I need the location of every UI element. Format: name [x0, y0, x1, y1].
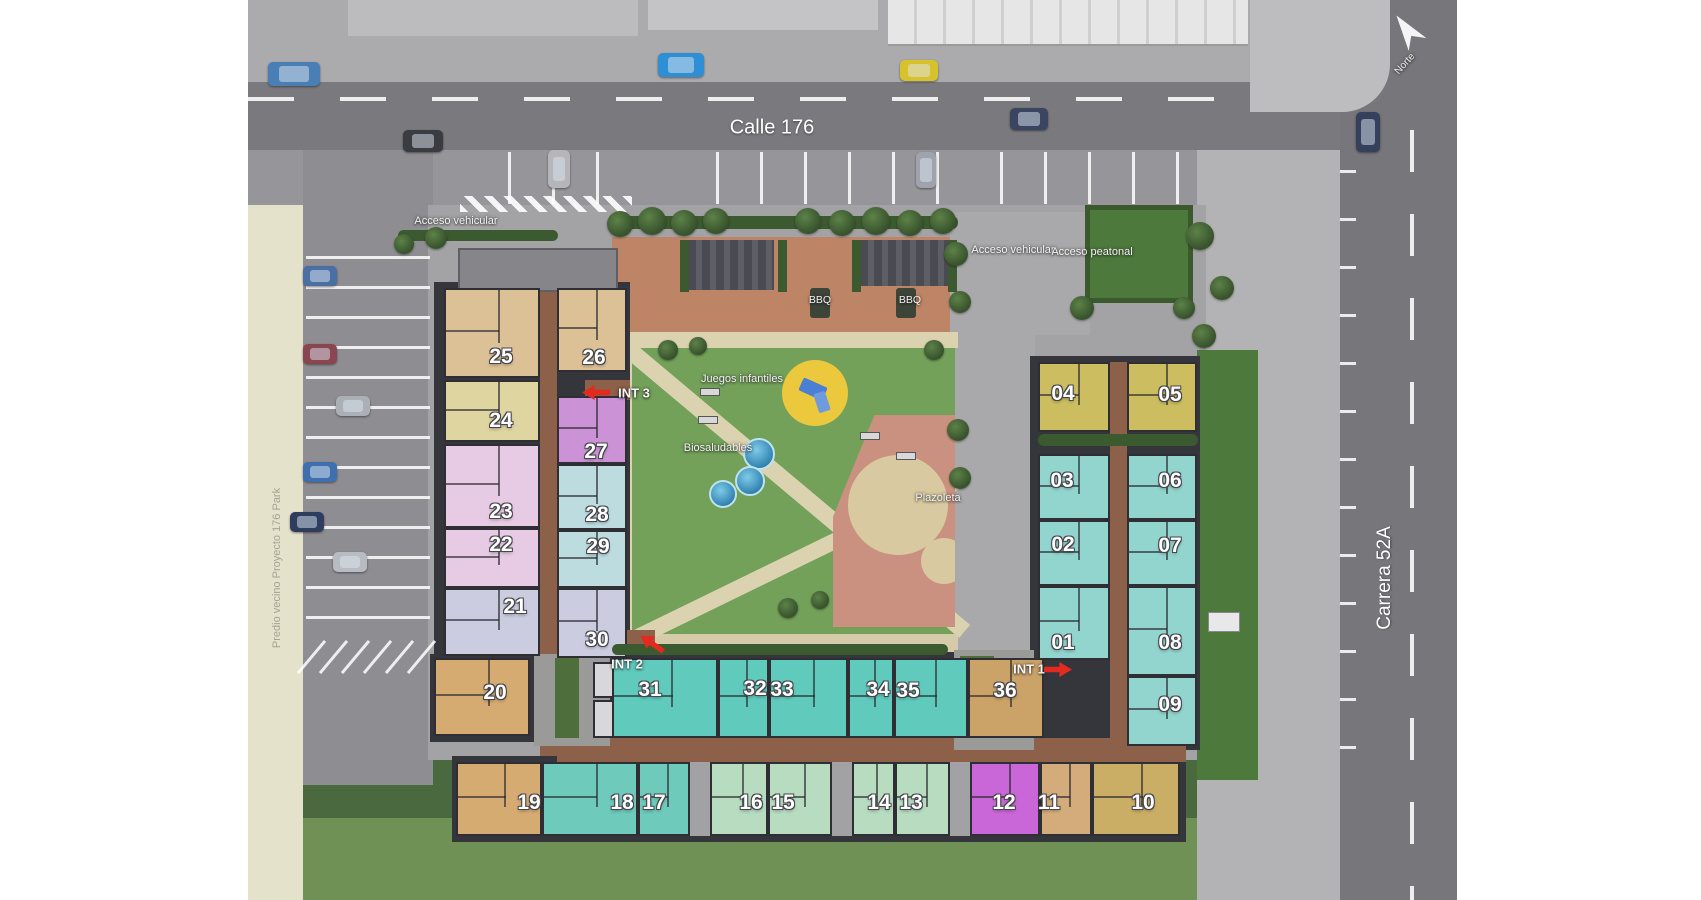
biosaludables-label: Biosaludables [684, 442, 753, 454]
int-marker-arrow-icon [636, 629, 668, 657]
unit-number-35: 35 [896, 679, 919, 703]
access-peatonal-label: Acceso peatonal [1051, 246, 1132, 258]
unit-number-09: 09 [1158, 693, 1181, 717]
access-west-label: Acceso vehicular [414, 215, 497, 227]
juegos-infantiles-label: Juegos infantiles [701, 373, 783, 385]
int-marker-arrow-icon [1044, 662, 1072, 677]
unit-number-07: 07 [1158, 534, 1181, 558]
unit-number-31: 31 [638, 678, 661, 702]
unit-number-16: 16 [739, 791, 762, 815]
unit-number-26: 26 [582, 346, 605, 370]
unit-number-34: 34 [866, 678, 889, 702]
unit-number-11: 11 [1038, 791, 1060, 815]
unit-number-08: 08 [1158, 631, 1181, 655]
unit-number-14: 14 [867, 791, 890, 815]
unit-number-20: 20 [483, 681, 506, 705]
int-marker-arrow-icon [582, 385, 610, 400]
neighbor-lot-label: Predio vecino Proyecto 176 Park [271, 488, 283, 648]
unit-number-30: 30 [585, 628, 608, 652]
plazoleta-label: Plazoleta [915, 492, 960, 504]
unit-number-04: 04 [1051, 382, 1074, 406]
unit-number-06: 06 [1158, 469, 1181, 493]
int-marker-label: INT 3 [618, 386, 650, 401]
unit-number-17: 17 [642, 791, 665, 815]
unit-number-05: 05 [1158, 383, 1181, 407]
unit-number-24: 24 [489, 409, 512, 433]
unit-number-12: 12 [992, 791, 1015, 815]
unit-number-21: 21 [503, 595, 526, 619]
int-marker-label: INT 2 [611, 657, 643, 672]
unit-number-23: 23 [489, 500, 512, 524]
unit-number-13: 13 [899, 791, 922, 815]
access-vehicular-label: Acceso vehicular [971, 244, 1054, 256]
unit-number-03: 03 [1050, 469, 1073, 493]
unit-number-01: 01 [1051, 631, 1074, 655]
site-plan-canvas: 2526242723282229213020313233343536040503… [0, 0, 1701, 900]
unit-number-33: 33 [770, 678, 793, 702]
unit-number-25: 25 [489, 345, 512, 369]
unit-number-28: 28 [585, 503, 608, 527]
int-marker-label: INT 1 [1013, 662, 1045, 677]
labels-layer: 2526242723282229213020313233343536040503… [248, 0, 1457, 900]
unit-number-10: 10 [1131, 791, 1154, 815]
unit-number-18: 18 [610, 791, 633, 815]
unit-number-36: 36 [993, 679, 1016, 703]
bbq-label-1: BBQ [809, 294, 831, 306]
street-label-carrera-52a: Carrera 52A [1374, 526, 1396, 630]
unit-number-19: 19 [517, 791, 540, 815]
unit-number-27: 27 [584, 440, 607, 464]
unit-number-22: 22 [489, 533, 512, 557]
unit-number-02: 02 [1051, 533, 1074, 557]
unit-number-29: 29 [586, 535, 609, 559]
unit-number-32: 32 [743, 677, 766, 701]
street-label-calle-176: Calle 176 [730, 117, 815, 140]
site-plan-render: 2526242723282229213020313233343536040503… [248, 0, 1457, 900]
unit-number-15: 15 [771, 791, 794, 815]
bbq-label-2: BBQ [899, 294, 921, 306]
